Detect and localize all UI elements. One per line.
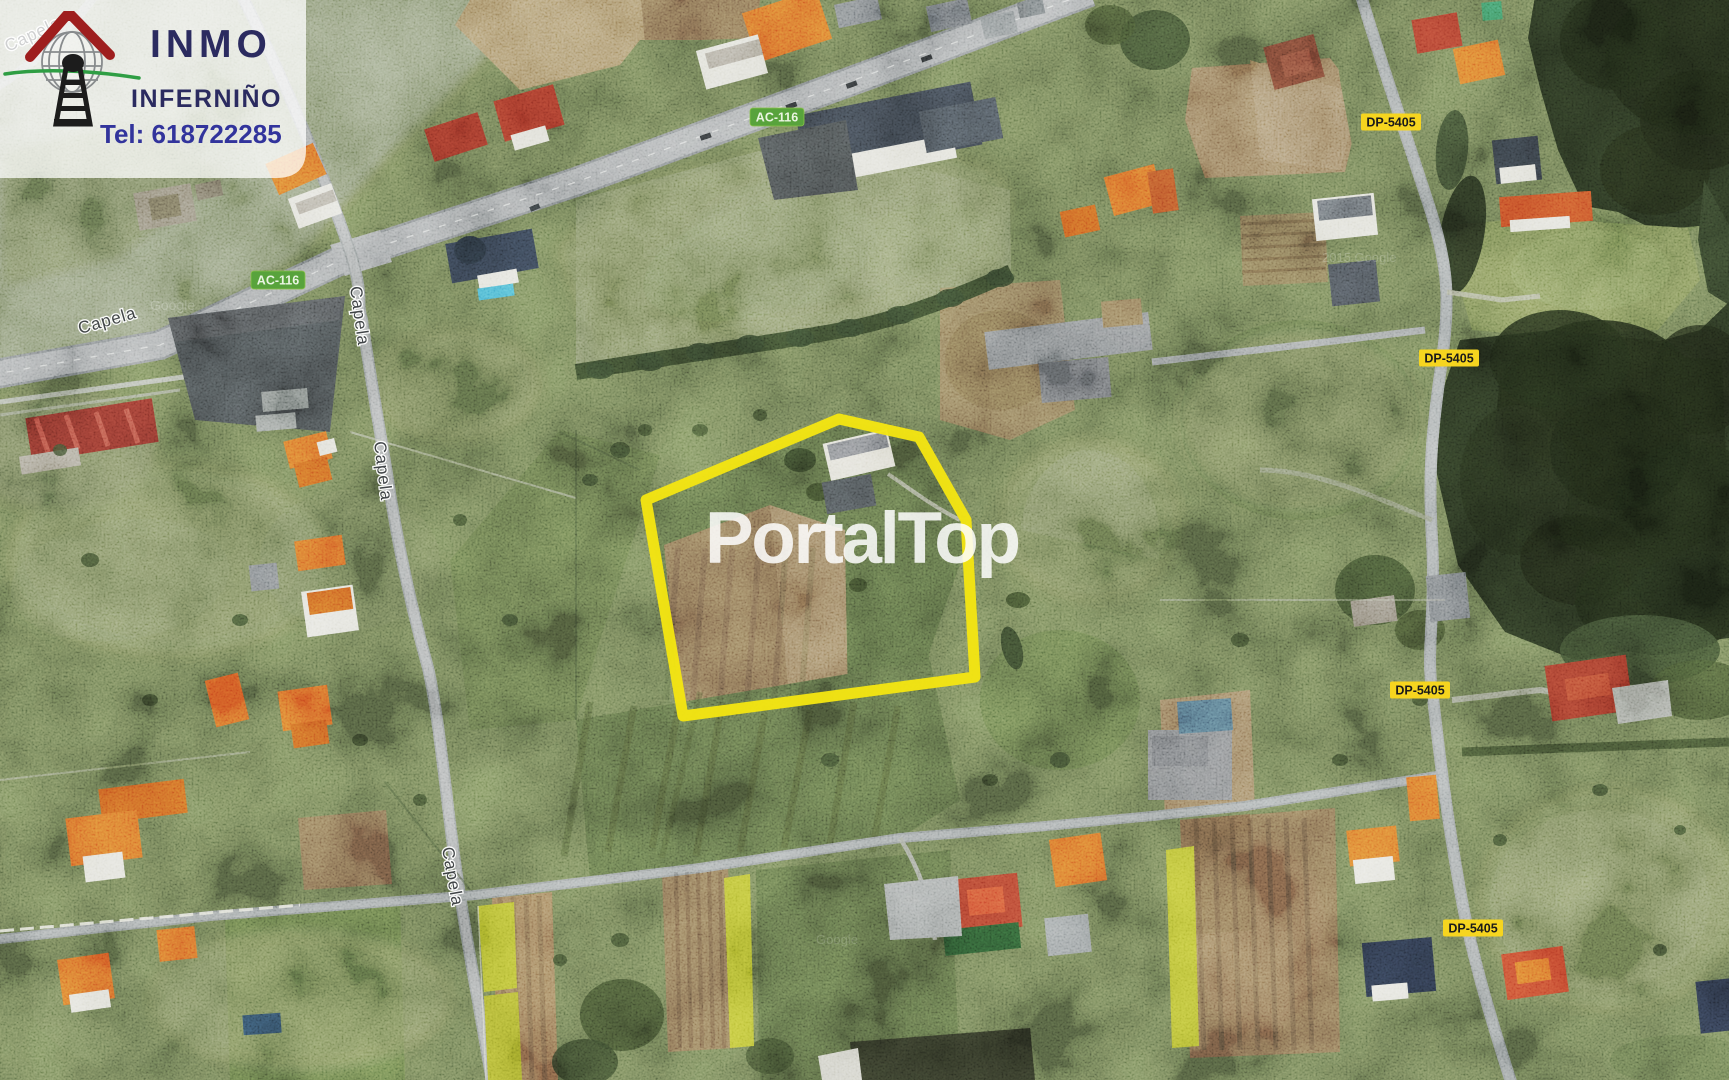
svg-text:INFERNIÑO: INFERNIÑO — [131, 83, 282, 113]
svg-text:DP-5405: DP-5405 — [1424, 352, 1473, 366]
svg-text:AC-116: AC-116 — [257, 274, 299, 288]
svg-text:DP-5405: DP-5405 — [1395, 684, 1444, 698]
svg-text:DP-5405: DP-5405 — [1448, 922, 1497, 936]
svg-text:PortalTop: PortalTop — [705, 498, 1019, 579]
svg-text:INMO: INMO — [150, 23, 272, 66]
svg-text:Google: Google — [150, 297, 195, 313]
svg-text:Tel: 618722285: Tel: 618722285 — [100, 119, 282, 149]
svg-text:DP-5405: DP-5405 — [1366, 116, 1415, 130]
svg-text:2015 Google: 2015 Google — [1322, 250, 1396, 265]
svg-text:Google: Google — [816, 932, 858, 947]
svg-text:AC-116: AC-116 — [756, 111, 798, 125]
